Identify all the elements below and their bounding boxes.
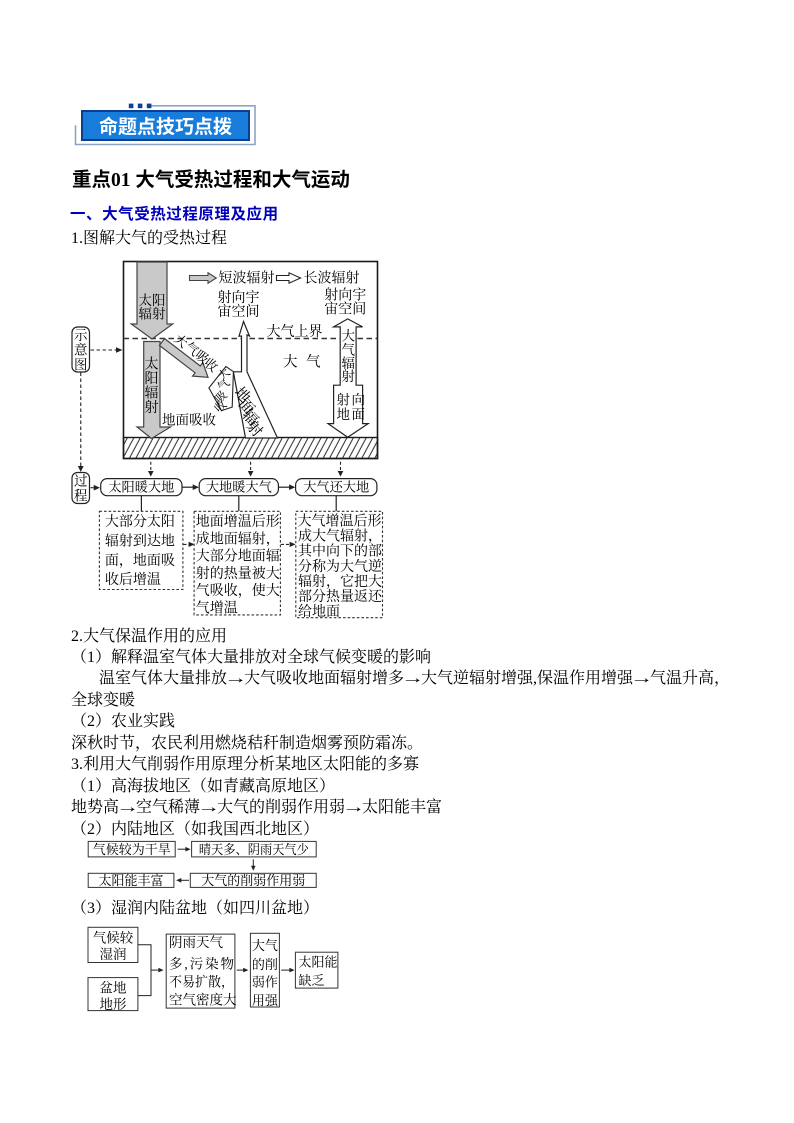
svg-text:射: 射	[145, 400, 159, 416]
svg-text:地面增温后形: 地面增温后形	[196, 513, 280, 530]
svg-text:地形: 地形	[100, 996, 127, 1012]
svg-text:程: 程	[74, 488, 88, 503]
svg-text:阴雨天气: 阴雨天气	[169, 935, 223, 950]
svg-text:辐射，它把大: 辐射，它把大	[298, 573, 382, 590]
svg-text:空气密度大: 空气密度大	[169, 992, 237, 1008]
svg-text:向: 向	[352, 393, 366, 408]
svg-text:部分热量返还: 部分热量返还	[298, 588, 383, 605]
svg-text:射的热量被大: 射的热量被大	[196, 565, 280, 582]
svg-text:太阳暖大地: 太阳暖大地	[108, 479, 174, 495]
svg-text:图: 图	[74, 357, 88, 372]
svg-text:成地面辐射，: 成地面辐射，	[196, 530, 280, 547]
svg-text:辐射: 辐射	[139, 307, 166, 322]
svg-text:大气增温后形: 大气增温后形	[298, 513, 382, 530]
svg-text:大部分地面辐: 大部分地面辐	[196, 548, 280, 565]
svg-text:大气: 大气	[252, 938, 278, 953]
svg-text:给地面: 给地面	[298, 603, 340, 620]
svg-text:射向宇: 射向宇	[324, 288, 366, 304]
svg-text:气: 气	[306, 354, 321, 371]
svg-text:不易扩散，: 不易扩散，	[169, 974, 234, 991]
svg-text:气吸收，使大: 气吸收，使大	[196, 582, 280, 599]
svg-text:地面吸收: 地面吸收	[162, 412, 216, 428]
svg-text:太阳能: 太阳能	[299, 955, 338, 970]
svg-text:地: 地	[337, 406, 351, 422]
svg-text:太: 太	[145, 356, 159, 373]
svg-text:大气上界: 大气上界	[267, 323, 323, 340]
svg-text:辐: 辐	[145, 386, 159, 402]
svg-text:分称为大气逆: 分称为大气逆	[298, 558, 382, 575]
svg-text:意: 意	[74, 343, 88, 358]
svg-text:的削: 的削	[252, 957, 278, 972]
svg-text:宙空间: 宙空间	[218, 303, 260, 320]
svg-text:长波辐射: 长波辐射	[304, 271, 360, 287]
svg-text:湿润: 湿润	[100, 947, 127, 962]
svg-text:太阳能丰富: 太阳能丰富	[98, 873, 163, 888]
svg-text:气候较为干旱: 气候较为干旱	[93, 842, 171, 857]
svg-text:大: 大	[342, 328, 356, 344]
svg-text:辐射到达地: 辐射到达地	[105, 532, 175, 549]
svg-text:阳: 阳	[145, 371, 159, 387]
svg-text:气增温: 气增温	[196, 601, 238, 617]
svg-text:成大气辐射，: 成大气辐射，	[298, 528, 382, 545]
svg-text:大气还大地: 大气还大地	[303, 479, 369, 495]
svg-text:缺乏: 缺乏	[299, 973, 325, 988]
svg-text:射: 射	[337, 393, 351, 408]
svg-text:示: 示	[74, 328, 88, 343]
svg-text:多,污染物: 多,污染物	[169, 956, 235, 972]
svg-text:收后增温: 收后增温	[105, 571, 161, 588]
svg-text:气候较: 气候较	[93, 931, 134, 946]
svg-text:盆地: 盆地	[100, 980, 127, 996]
svg-text:其中向下的部: 其中向下的部	[298, 543, 382, 560]
svg-text:面: 面	[352, 407, 366, 422]
svg-text:晴天多、阴雨天气少: 晴天多、阴雨天气少	[199, 842, 309, 857]
svg-text:过: 过	[74, 473, 88, 488]
svg-text:宙空间: 宙空间	[324, 301, 366, 318]
svg-text:短波辐射: 短波辐射	[219, 271, 275, 287]
svg-text:用强: 用强	[252, 993, 279, 1008]
svg-text:射: 射	[342, 369, 356, 384]
svg-text:大部分太阳: 大部分太阳	[105, 513, 175, 530]
svg-text:弱作: 弱作	[252, 974, 278, 989]
svg-text:射向宇: 射向宇	[218, 290, 260, 306]
svg-text:大气的削弱作用弱: 大气的削弱作用弱	[201, 873, 305, 888]
svg-text:大: 大	[283, 354, 298, 371]
svg-text:大地暖大气: 大地暖大气	[206, 479, 272, 495]
svg-text:面，地面吸: 面，地面吸	[105, 552, 175, 569]
